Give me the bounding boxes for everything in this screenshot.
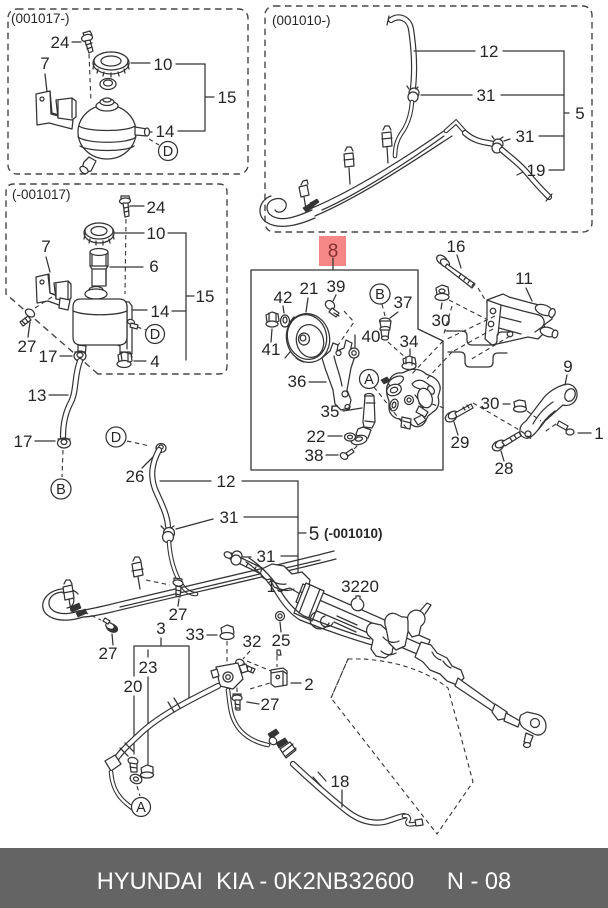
- svg-text:D: D: [111, 430, 121, 446]
- svg-text:21: 21: [300, 279, 319, 298]
- svg-text:37: 37: [394, 293, 413, 312]
- svg-text:7: 7: [41, 237, 50, 256]
- svg-text:25: 25: [272, 631, 291, 650]
- svg-text:31: 31: [257, 547, 276, 566]
- svg-text:40: 40: [362, 327, 381, 346]
- svg-text:28: 28: [495, 459, 514, 478]
- svg-text:HYUNDAI KIA - 0K2NB32600: HYUNDAI KIA - 0K2NB32600 N - 08: [97, 869, 511, 895]
- svg-text:36: 36: [288, 372, 307, 391]
- svg-text:(001017-): (001017-): [11, 11, 70, 26]
- svg-text:5: 5: [575, 104, 584, 123]
- svg-text:15: 15: [218, 88, 237, 107]
- svg-text:20: 20: [124, 677, 143, 696]
- svg-text:27: 27: [99, 644, 118, 663]
- svg-text:16: 16: [447, 237, 466, 256]
- svg-text:5: 5: [309, 524, 320, 545]
- svg-text:26: 26: [126, 467, 145, 486]
- svg-text:11: 11: [515, 269, 533, 288]
- svg-text:(-001010): (-001010): [324, 526, 383, 541]
- svg-text:33: 33: [186, 625, 205, 644]
- svg-text:(001010-): (001010-): [272, 13, 331, 28]
- svg-text:30: 30: [481, 394, 500, 413]
- svg-text:27: 27: [169, 605, 188, 624]
- svg-text:7: 7: [40, 54, 49, 73]
- svg-text:6: 6: [149, 257, 158, 276]
- svg-text:42: 42: [274, 288, 293, 307]
- svg-text:27: 27: [18, 337, 37, 356]
- svg-text:3: 3: [156, 619, 165, 638]
- svg-text:23: 23: [139, 658, 158, 677]
- svg-text:17: 17: [39, 347, 58, 366]
- svg-text:31: 31: [220, 508, 239, 527]
- svg-text:24: 24: [147, 198, 166, 217]
- svg-text:(-001017): (-001017): [12, 187, 71, 202]
- svg-text:D: D: [150, 327, 160, 343]
- svg-text:30: 30: [432, 311, 451, 330]
- svg-text:39: 39: [327, 277, 346, 296]
- svg-text:27: 27: [261, 695, 280, 714]
- svg-text:19: 19: [527, 161, 546, 180]
- svg-text:4: 4: [150, 352, 159, 371]
- svg-text:22: 22: [307, 427, 326, 446]
- svg-text:14: 14: [156, 122, 175, 141]
- svg-text:B: B: [56, 482, 66, 498]
- svg-text:18: 18: [331, 772, 350, 791]
- svg-text:12: 12: [480, 42, 499, 61]
- svg-text:32: 32: [243, 632, 262, 651]
- svg-text:24: 24: [51, 33, 70, 52]
- svg-text:10: 10: [147, 224, 166, 243]
- svg-text:3220: 3220: [341, 577, 379, 596]
- svg-text:31: 31: [516, 127, 535, 146]
- svg-text:15: 15: [196, 287, 215, 306]
- svg-text:41: 41: [262, 340, 281, 359]
- svg-text:B: B: [375, 287, 385, 303]
- svg-text:31: 31: [477, 86, 496, 105]
- svg-text:14: 14: [151, 302, 170, 321]
- svg-text:2: 2: [304, 675, 313, 694]
- svg-text:10: 10: [154, 55, 173, 74]
- svg-text:9: 9: [563, 357, 572, 376]
- svg-text:1: 1: [594, 424, 603, 443]
- svg-text:12: 12: [217, 472, 236, 491]
- svg-text:35: 35: [321, 402, 340, 421]
- svg-text:A: A: [364, 372, 374, 388]
- svg-text:D: D: [163, 144, 173, 160]
- svg-text:13: 13: [28, 386, 47, 405]
- svg-text:34: 34: [400, 332, 419, 351]
- svg-text:29: 29: [451, 433, 470, 452]
- svg-text:17: 17: [14, 432, 33, 451]
- svg-text:38: 38: [305, 446, 324, 465]
- svg-text:A: A: [136, 800, 146, 816]
